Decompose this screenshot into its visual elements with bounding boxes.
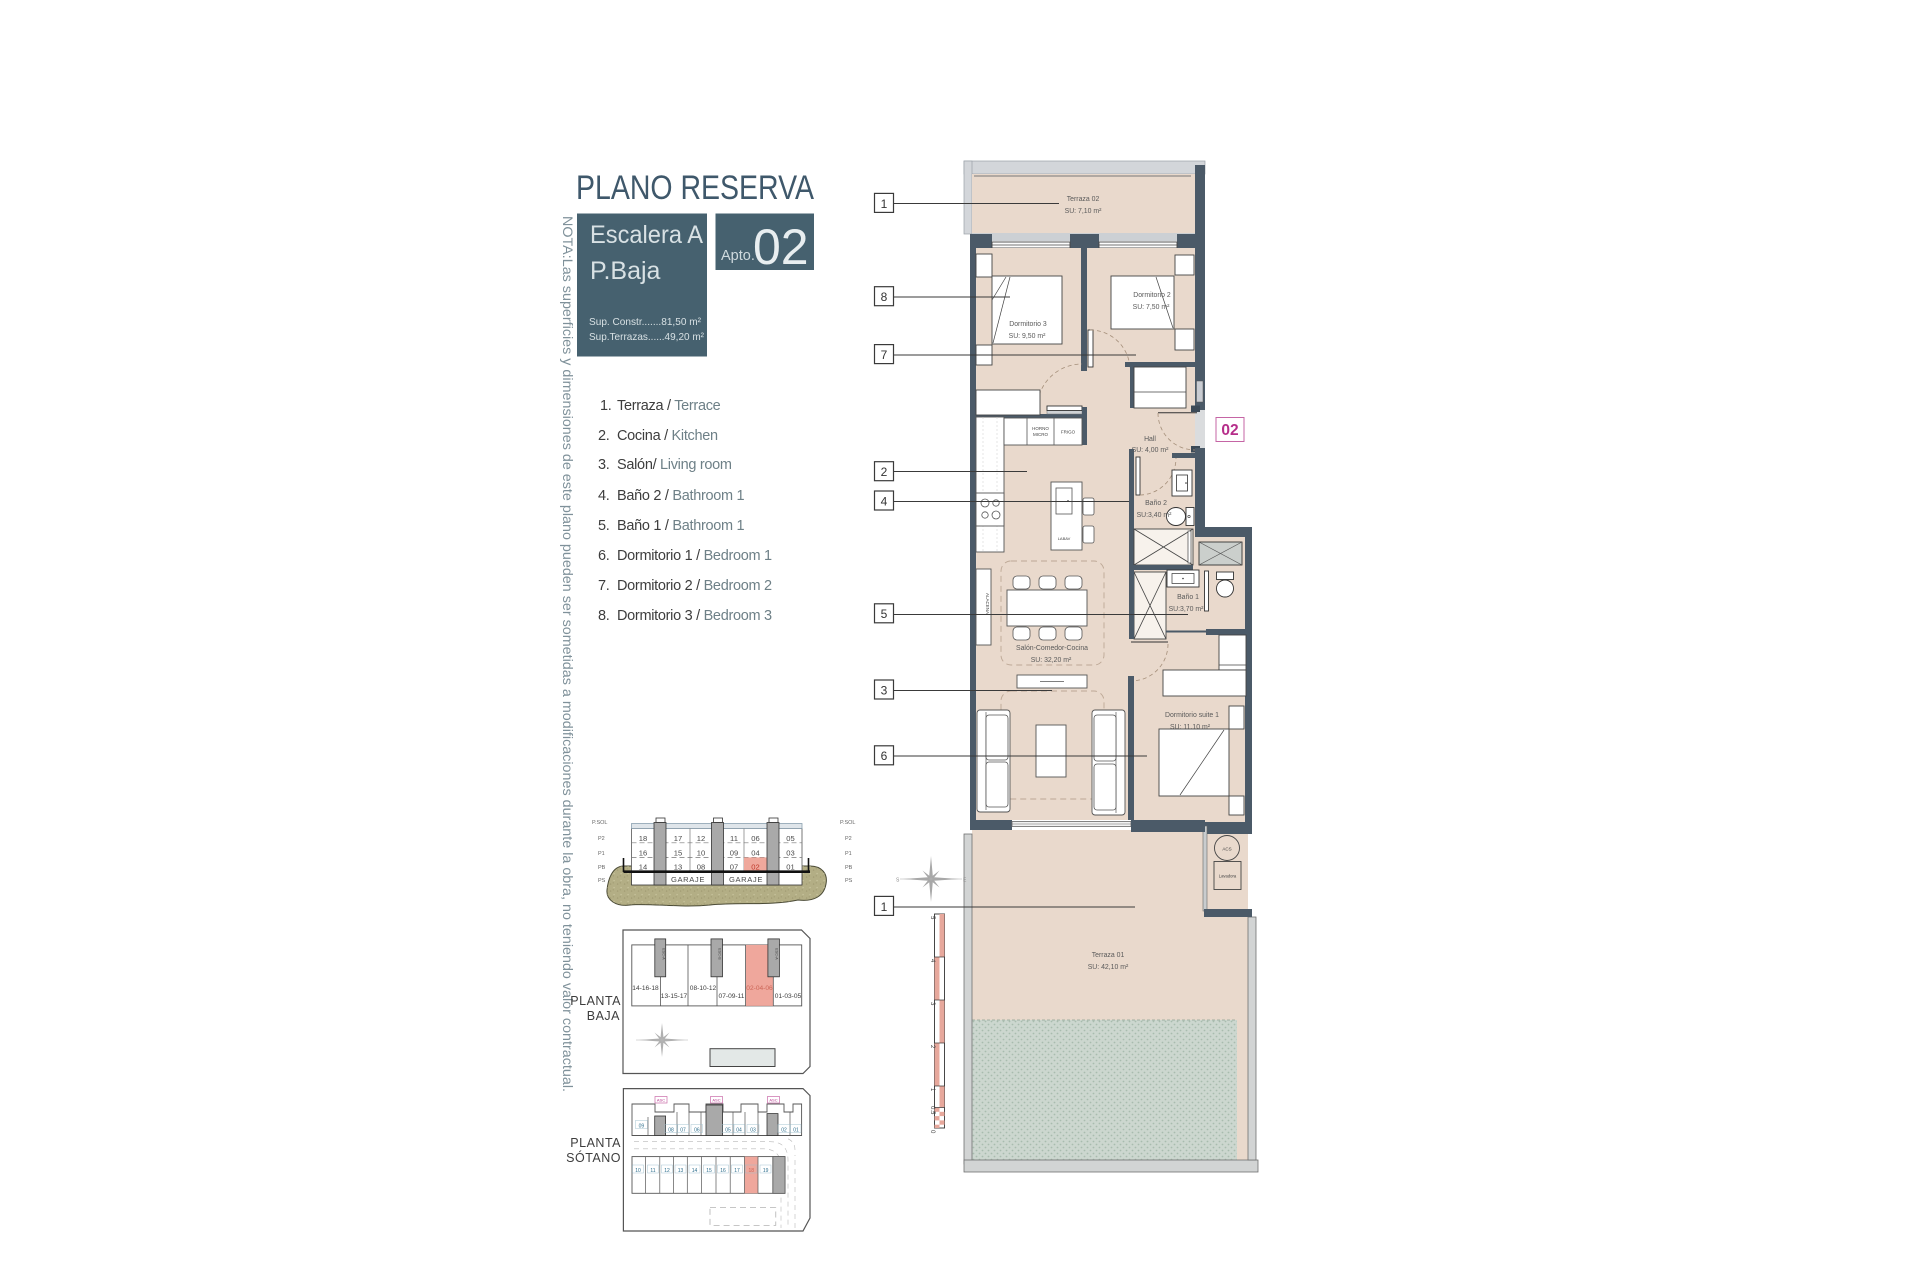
- svg-text:Sup.Terrazas......49,20 m²: Sup.Terrazas......49,20 m²: [589, 331, 704, 343]
- svg-text:16: 16: [720, 1168, 726, 1174]
- svg-text:1: 1: [881, 900, 888, 914]
- svg-text:Lavadora: Lavadora: [1219, 874, 1237, 879]
- svg-text:12: 12: [664, 1168, 670, 1174]
- svg-text:SU: 7,50 m²: SU: 7,50 m²: [1133, 304, 1170, 311]
- svg-text:MICRO: MICRO: [1033, 432, 1048, 437]
- svg-text:Cocina / Kitchen: Cocina / Kitchen: [617, 428, 718, 444]
- svg-text:13-15-17: 13-15-17: [661, 993, 688, 1000]
- svg-text:P1: P1: [598, 851, 605, 857]
- svg-text:7.: 7.: [598, 578, 610, 594]
- svg-text:SÓTANO: SÓTANO: [566, 1150, 621, 1165]
- svg-text:ASC: ASC: [712, 1098, 720, 1103]
- svg-text:07-09-11: 07-09-11: [719, 993, 745, 1000]
- svg-text:06: 06: [751, 834, 759, 843]
- svg-text:PLANTA: PLANTA: [570, 1136, 621, 1150]
- svg-text:1: 1: [881, 197, 888, 211]
- svg-text:16: 16: [639, 849, 647, 858]
- svg-text:GARAJE: GARAJE: [671, 875, 705, 884]
- svg-text:19: 19: [763, 1168, 769, 1174]
- svg-text:8: 8: [881, 290, 888, 304]
- svg-text:HORNO: HORNO: [1032, 426, 1049, 431]
- svg-text:17: 17: [734, 1168, 740, 1174]
- svg-text:PS: PS: [845, 878, 853, 884]
- svg-text:04: 04: [736, 1128, 742, 1134]
- svg-text:6.: 6.: [598, 548, 610, 564]
- svg-text:06: 06: [694, 1128, 700, 1134]
- svg-text:08: 08: [668, 1128, 674, 1134]
- svg-text:02: 02: [753, 219, 809, 275]
- svg-text:14-16-18: 14-16-18: [632, 985, 659, 992]
- svg-text:13: 13: [678, 1168, 684, 1174]
- svg-text:09: 09: [730, 849, 738, 858]
- svg-text:11: 11: [730, 834, 738, 843]
- svg-text:01: 01: [786, 863, 794, 872]
- svg-text:Dormitorio 1 / Bedroom 1: Dormitorio 1 / Bedroom 1: [617, 548, 772, 564]
- svg-text:ESC-A: ESC-A: [775, 948, 779, 960]
- svg-text:03: 03: [750, 1128, 756, 1134]
- svg-text:08: 08: [697, 863, 705, 872]
- svg-text:09: 09: [639, 1124, 645, 1130]
- svg-text:6: 6: [881, 749, 888, 763]
- svg-text:PB: PB: [845, 865, 853, 871]
- svg-text:14: 14: [639, 863, 647, 872]
- svg-text:SU: 42,10 m²: SU: 42,10 m²: [1088, 964, 1129, 971]
- svg-text:07: 07: [680, 1128, 686, 1134]
- svg-text:02: 02: [1221, 422, 1238, 439]
- svg-text:2: 2: [881, 465, 888, 479]
- svg-text:S: S: [896, 878, 900, 884]
- svg-text:7: 7: [881, 348, 888, 362]
- svg-text:Terraza 02: Terraza 02: [1067, 196, 1100, 203]
- svg-text:11: 11: [650, 1168, 655, 1174]
- svg-text:4.: 4.: [598, 488, 610, 504]
- svg-text:0: 0: [929, 1130, 935, 1134]
- svg-text:08-10-12: 08-10-12: [690, 985, 717, 992]
- svg-text:10: 10: [635, 1168, 641, 1174]
- svg-text:14: 14: [692, 1168, 698, 1174]
- svg-text:05: 05: [786, 834, 794, 843]
- svg-text:5: 5: [881, 607, 888, 621]
- svg-text:PLANO RESERVA: PLANO RESERVA: [576, 169, 814, 207]
- svg-text:ESC-A: ESC-A: [662, 948, 666, 960]
- svg-text:SU:3,40 m²: SU:3,40 m²: [1137, 512, 1173, 519]
- svg-text:15: 15: [706, 1168, 712, 1174]
- svg-text:ASC: ASC: [657, 1098, 665, 1103]
- svg-text:Dormitorio suite 1: Dormitorio suite 1: [1165, 712, 1219, 719]
- svg-text:P.SOL: P.SOL: [840, 820, 856, 826]
- svg-text:18: 18: [639, 834, 647, 843]
- svg-text:Sup. Constr.......81,50 m²: Sup. Constr.......81,50 m²: [589, 316, 701, 328]
- svg-text:FRIGO: FRIGO: [1061, 430, 1076, 435]
- svg-text:ACS: ACS: [1222, 847, 1231, 852]
- svg-text:07: 07: [730, 863, 738, 872]
- svg-text:Apto.: Apto.: [721, 248, 755, 264]
- svg-text:P.SOL: P.SOL: [592, 820, 608, 826]
- svg-text:13: 13: [674, 863, 682, 872]
- svg-text:01-03-05: 01-03-05: [775, 993, 802, 1000]
- svg-text:SU: 32,20 m²: SU: 32,20 m²: [1031, 657, 1072, 664]
- svg-text:01: 01: [793, 1128, 799, 1134]
- svg-text:Dormitorio 2: Dormitorio 2: [1133, 292, 1171, 299]
- svg-text:0.5: 0.5: [929, 1106, 935, 1115]
- svg-text:Dormitorio 2 / Bedroom 2: Dormitorio 2 / Bedroom 2: [617, 578, 772, 594]
- svg-text:3: 3: [881, 683, 888, 697]
- svg-text:Terraza / Terrace: Terraza / Terrace: [617, 398, 721, 414]
- svg-text:BAJA: BAJA: [587, 1009, 620, 1023]
- svg-text:Baño 1 / Bathroom 1: Baño 1 / Bathroom 1: [617, 518, 745, 534]
- svg-text:2.: 2.: [598, 428, 610, 444]
- svg-text:Salón/ Living room: Salón/ Living room: [617, 457, 732, 473]
- svg-text:LABAV: LABAV: [1058, 536, 1071, 541]
- svg-text:ALACENA: ALACENA: [985, 593, 990, 614]
- svg-text:P.Baja: P.Baja: [590, 257, 661, 285]
- svg-text:18: 18: [749, 1168, 755, 1174]
- svg-text:Dormitorio 3 / Bedroom 3: Dormitorio 3 / Bedroom 3: [617, 608, 772, 624]
- svg-text:04: 04: [751, 849, 759, 858]
- svg-text:Baño 2 / Bathroom 1: Baño 2 / Bathroom 1: [617, 488, 745, 504]
- svg-text:GARAJE: GARAJE: [729, 875, 763, 884]
- svg-text:1.: 1.: [600, 398, 612, 414]
- svg-text:PLANTA: PLANTA: [570, 994, 621, 1008]
- svg-text:5.: 5.: [598, 518, 610, 534]
- svg-text:02-04-06: 02-04-06: [746, 985, 773, 992]
- svg-text:P1: P1: [845, 851, 852, 857]
- svg-text:Salón-Comedor-Cocina: Salón-Comedor-Cocina: [1016, 645, 1088, 652]
- svg-text:10: 10: [697, 849, 705, 858]
- svg-text:03: 03: [786, 849, 794, 858]
- svg-text:02: 02: [751, 863, 759, 872]
- svg-text:Dormitorio 3: Dormitorio 3: [1009, 321, 1047, 328]
- svg-text:8.: 8.: [598, 608, 610, 624]
- svg-text:SU:3,70 m²: SU:3,70 m²: [1169, 606, 1205, 613]
- svg-text:Terraza 01: Terraza 01: [1092, 952, 1125, 959]
- svg-text:15: 15: [674, 849, 682, 858]
- svg-text:17: 17: [674, 834, 682, 843]
- svg-text:SU: 7,10 m²: SU: 7,10 m²: [1065, 208, 1102, 215]
- svg-text:SU: 9,50 m²: SU: 9,50 m²: [1009, 333, 1046, 340]
- svg-text:02: 02: [781, 1128, 787, 1134]
- svg-text:SU: 4,00 m²: SU: 4,00 m²: [1132, 447, 1169, 454]
- svg-text:Escalera A: Escalera A: [590, 221, 703, 249]
- svg-text:Baño 1: Baño 1: [1177, 594, 1199, 601]
- svg-text:NOTA:Las superficies y dimensi: NOTA:Las superficies y dimensiones de es…: [560, 216, 575, 1092]
- svg-text:Hall: Hall: [1144, 436, 1156, 443]
- svg-text:P2: P2: [845, 836, 852, 842]
- svg-text:ESC-B: ESC-B: [718, 948, 722, 960]
- svg-text:12: 12: [697, 834, 705, 843]
- svg-text:P2: P2: [598, 836, 605, 842]
- svg-text:PS: PS: [598, 878, 606, 884]
- svg-text:PB: PB: [598, 865, 606, 871]
- svg-text:05: 05: [725, 1128, 731, 1134]
- svg-text:4: 4: [881, 494, 888, 508]
- svg-text:Baño 2: Baño 2: [1145, 500, 1167, 507]
- svg-text:3.: 3.: [598, 457, 610, 473]
- svg-text:ASC: ASC: [769, 1098, 777, 1103]
